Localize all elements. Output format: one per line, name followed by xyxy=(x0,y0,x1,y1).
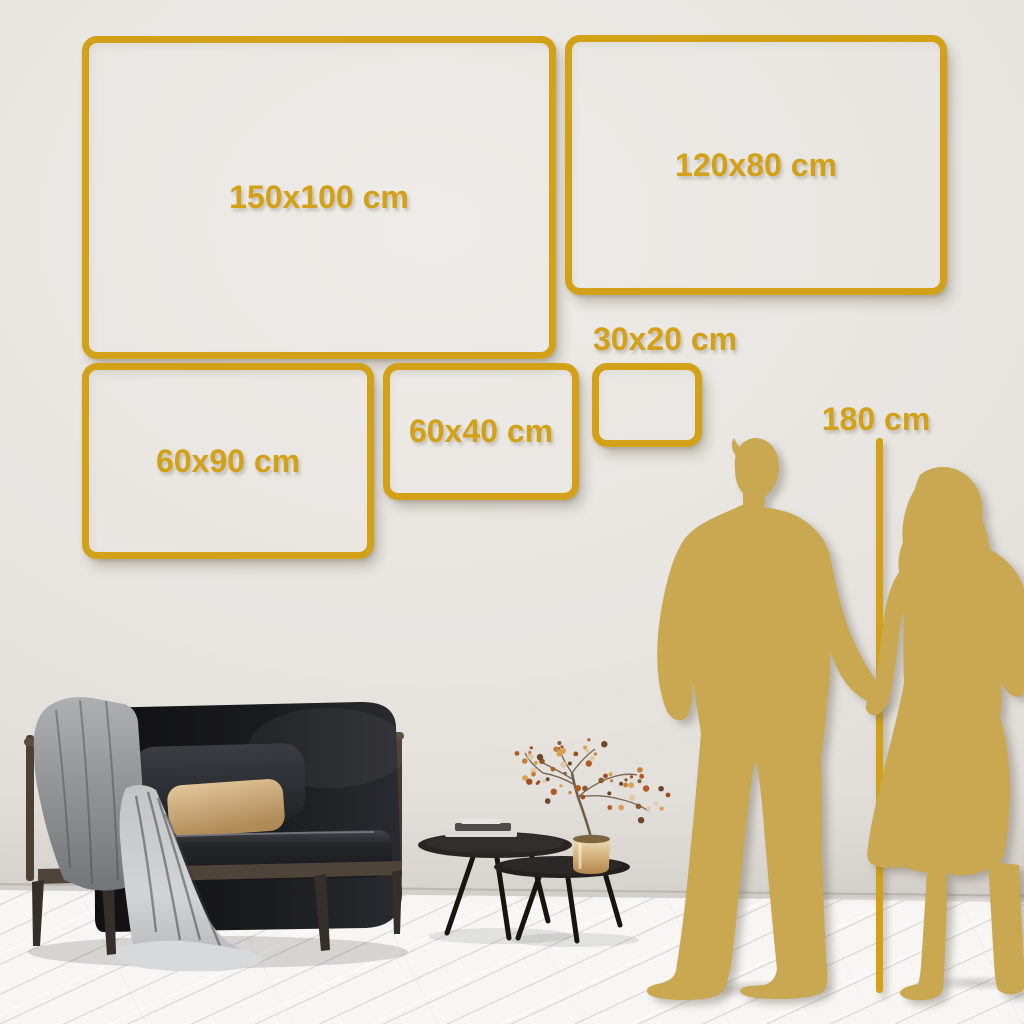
size-label-60x40: 60x40 cm xyxy=(409,413,553,450)
lumbar-pillow-beige xyxy=(166,778,285,838)
woman-right-leg xyxy=(988,861,1024,994)
woman-left-leg xyxy=(900,857,947,1000)
sofa xyxy=(8,688,418,1024)
brass-vase xyxy=(573,835,610,874)
couple-silhouette xyxy=(638,425,1024,1024)
woman-head xyxy=(912,486,962,548)
size-label-120x80: 120x80 cm xyxy=(675,147,837,184)
size-label-30x20: 30x20 cm xyxy=(580,322,750,356)
woman-body-dress xyxy=(866,539,1024,875)
coffee-table-back xyxy=(418,819,572,938)
man-body xyxy=(647,505,883,1000)
man-head xyxy=(735,438,779,510)
size-label-60x90: 60x90 cm xyxy=(156,443,300,480)
canvas-size-guide-poster: 150x100 cm 120x80 cm 60x90 cm 60x40 cm 3… xyxy=(0,0,1024,1024)
size-frame-60x40: 60x40 cm xyxy=(383,363,579,500)
size-frame-150x100: 150x100 cm xyxy=(82,36,556,359)
man-silhouette xyxy=(647,438,883,1000)
woman-silhouette xyxy=(866,467,1024,1000)
size-label-150x100: 150x100 cm xyxy=(229,179,409,216)
size-frame-60x90: 60x90 cm xyxy=(82,363,374,559)
book-stack xyxy=(445,819,517,837)
size-frame-120x80: 120x80 cm xyxy=(565,35,947,295)
